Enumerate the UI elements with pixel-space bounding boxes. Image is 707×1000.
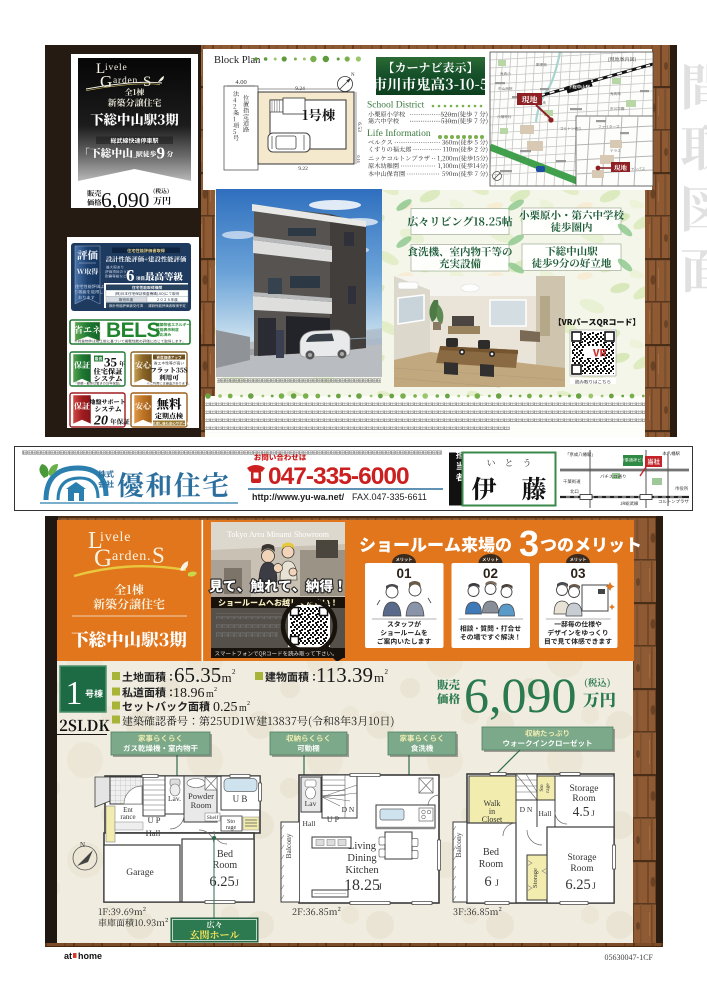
- svg-text:Shelf: Shelf: [207, 814, 219, 821]
- svg-text:4.00: 4.00: [235, 79, 246, 86]
- svg-text:Storage: Storage: [569, 784, 598, 794]
- svg-text:113.39: 113.39: [316, 663, 373, 687]
- svg-text:Storage: Storage: [532, 868, 539, 888]
- svg-text:Room: Room: [570, 864, 594, 874]
- svg-text:U P: U P: [327, 815, 340, 824]
- svg-text:rance: rance: [120, 813, 135, 821]
- svg-text:BELS: BELS: [106, 319, 161, 342]
- svg-text:Room: Room: [213, 860, 238, 871]
- svg-text:9: 9: [157, 144, 166, 163]
- svg-text:Room: Room: [572, 794, 596, 804]
- svg-text:ivele: ivele: [100, 530, 131, 545]
- svg-text:6,090: 6,090: [101, 188, 149, 212]
- svg-text:J: J: [378, 882, 382, 892]
- svg-text:Hall: Hall: [146, 828, 161, 838]
- svg-text:Hall: Hall: [539, 809, 552, 818]
- svg-text:1: 1: [66, 675, 83, 712]
- svg-text:4.5: 4.5: [573, 804, 590, 819]
- svg-text:S: S: [152, 543, 165, 568]
- svg-text:35: 35: [104, 355, 118, 370]
- svg-text:J: J: [592, 881, 596, 891]
- svg-text:U B: U B: [233, 794, 248, 804]
- svg-text:rage: rage: [226, 825, 237, 831]
- svg-text:Block Plan: Block Plan: [214, 55, 261, 66]
- svg-text:U P: U P: [148, 815, 161, 825]
- svg-text:http://www.yu-wa.net/: http://www.yu-wa.net/: [252, 492, 345, 502]
- svg-text:D N: D N: [342, 805, 355, 814]
- svg-text:65.35: 65.35: [174, 663, 221, 687]
- svg-text:Balcony: Balcony: [454, 832, 463, 857]
- svg-text:N: N: [80, 841, 85, 849]
- svg-text:J: J: [235, 878, 239, 888]
- svg-text:m: m: [374, 670, 384, 685]
- svg-text:Hall: Hall: [303, 819, 316, 828]
- svg-text:Bed: Bed: [483, 847, 499, 858]
- svg-text:6.25: 6.25: [565, 877, 590, 893]
- svg-text:Room: Room: [479, 859, 504, 870]
- svg-text:6: 6: [126, 266, 135, 285]
- svg-text:05630047-1CF: 05630047-1CF: [605, 953, 654, 962]
- svg-text:0.16: 0.16: [356, 155, 361, 162]
- svg-text:2: 2: [247, 701, 250, 707]
- svg-text:0.25: 0.25: [213, 700, 238, 715]
- svg-text:Living: Living: [348, 841, 377, 852]
- svg-text:2: 2: [385, 668, 389, 676]
- svg-text:Kitchen: Kitchen: [345, 865, 379, 876]
- svg-text:6.25: 6.25: [209, 874, 234, 890]
- svg-text:18.25: 18.25: [344, 877, 380, 894]
- svg-text:Room: Room: [191, 800, 212, 810]
- svg-text:arden: arden: [112, 549, 147, 564]
- svg-text:01: 01: [396, 566, 412, 581]
- svg-text:.: .: [139, 76, 141, 86]
- svg-text:at: at: [64, 951, 72, 961]
- svg-text:School District: School District: [367, 101, 425, 111]
- svg-text:2: 2: [214, 687, 217, 693]
- svg-text:Dining: Dining: [347, 853, 377, 864]
- svg-text:Tokyo Area Minami Showroom: Tokyo Area Minami Showroom: [227, 530, 330, 539]
- svg-text:m: m: [222, 670, 232, 685]
- svg-text:3: 3: [519, 523, 539, 564]
- svg-text:N: N: [351, 73, 355, 78]
- svg-text:m: m: [206, 689, 214, 700]
- svg-text:047-335-6000: 047-335-6000: [268, 463, 409, 490]
- svg-text:9.22: 9.22: [298, 166, 308, 172]
- svg-text:2: 2: [232, 668, 236, 676]
- svg-text:18.96: 18.96: [173, 686, 205, 701]
- svg-text:D N: D N: [520, 805, 533, 814]
- svg-text:Garage: Garage: [126, 868, 153, 878]
- svg-text:03: 03: [570, 566, 586, 581]
- svg-text:Storage: Storage: [567, 853, 596, 863]
- svg-text:J: J: [495, 878, 499, 888]
- svg-text:6.53: 6.53: [356, 122, 362, 132]
- svg-text:FAX.047-335-6611: FAX.047-335-6611: [352, 492, 427, 502]
- svg-text:Bed: Bed: [217, 849, 233, 860]
- svg-text:Lav: Lav: [305, 799, 317, 808]
- svg-text:Lav.: Lav.: [168, 794, 181, 803]
- svg-text:.: .: [147, 549, 151, 564]
- svg-text:Life Information: Life Information: [367, 128, 431, 139]
- svg-text:20: 20: [93, 414, 108, 429]
- svg-text:home: home: [78, 951, 102, 961]
- svg-text:6,090: 6,090: [464, 667, 577, 723]
- svg-text:02: 02: [483, 566, 498, 581]
- svg-text:m: m: [239, 703, 247, 714]
- svg-text:rage: rage: [545, 783, 551, 793]
- svg-text:6: 6: [484, 874, 491, 890]
- svg-text:Balcony: Balcony: [284, 833, 293, 858]
